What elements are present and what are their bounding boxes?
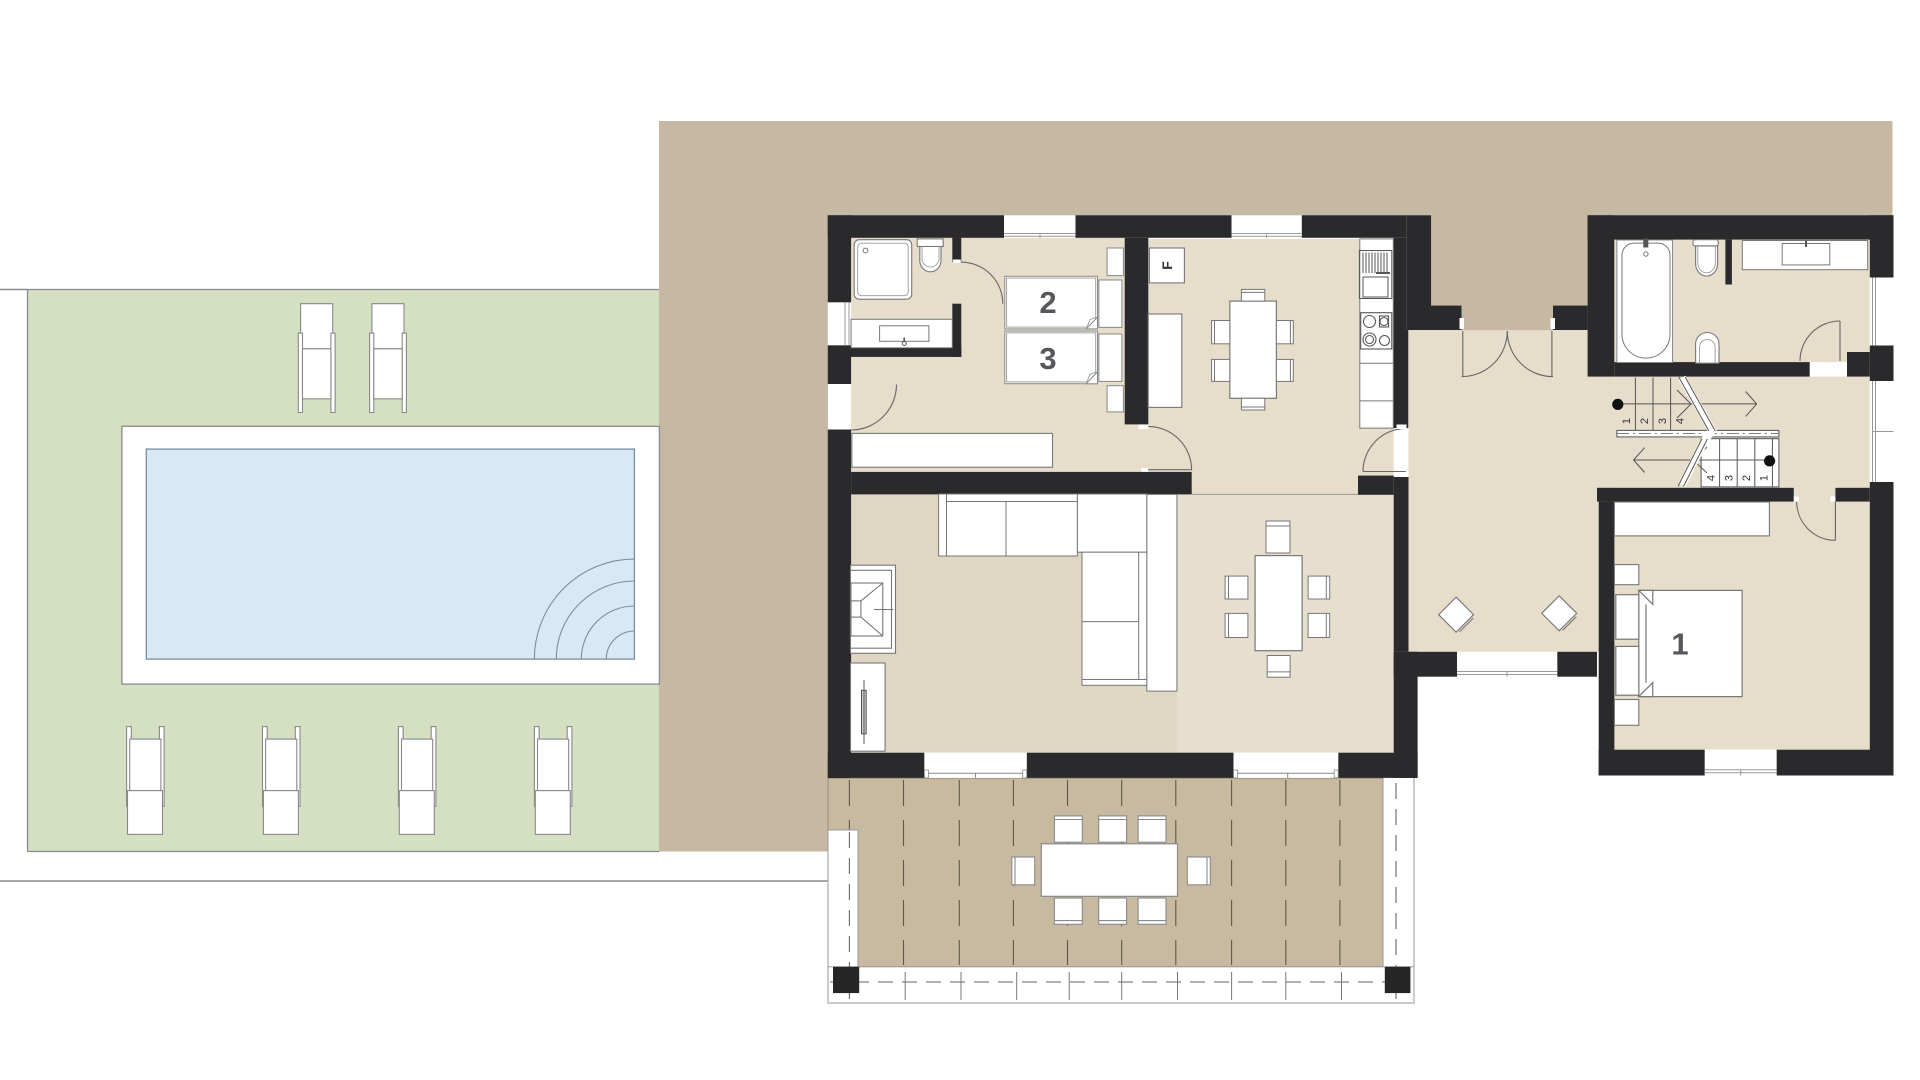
svg-text:1: 1 xyxy=(1759,475,1771,481)
svg-text:1: 1 xyxy=(1621,418,1633,424)
svg-text:3: 3 xyxy=(1657,418,1669,424)
svg-text:2: 2 xyxy=(1639,418,1651,424)
svg-text:1: 1 xyxy=(1671,627,1688,662)
svg-text:F: F xyxy=(1159,261,1175,270)
svg-text:2: 2 xyxy=(1741,475,1753,481)
svg-text:4: 4 xyxy=(1674,418,1686,424)
svg-text:3: 3 xyxy=(1039,341,1056,376)
svg-text:2: 2 xyxy=(1039,285,1056,320)
svg-text:4: 4 xyxy=(1706,475,1718,481)
svg-text:3: 3 xyxy=(1724,475,1736,481)
